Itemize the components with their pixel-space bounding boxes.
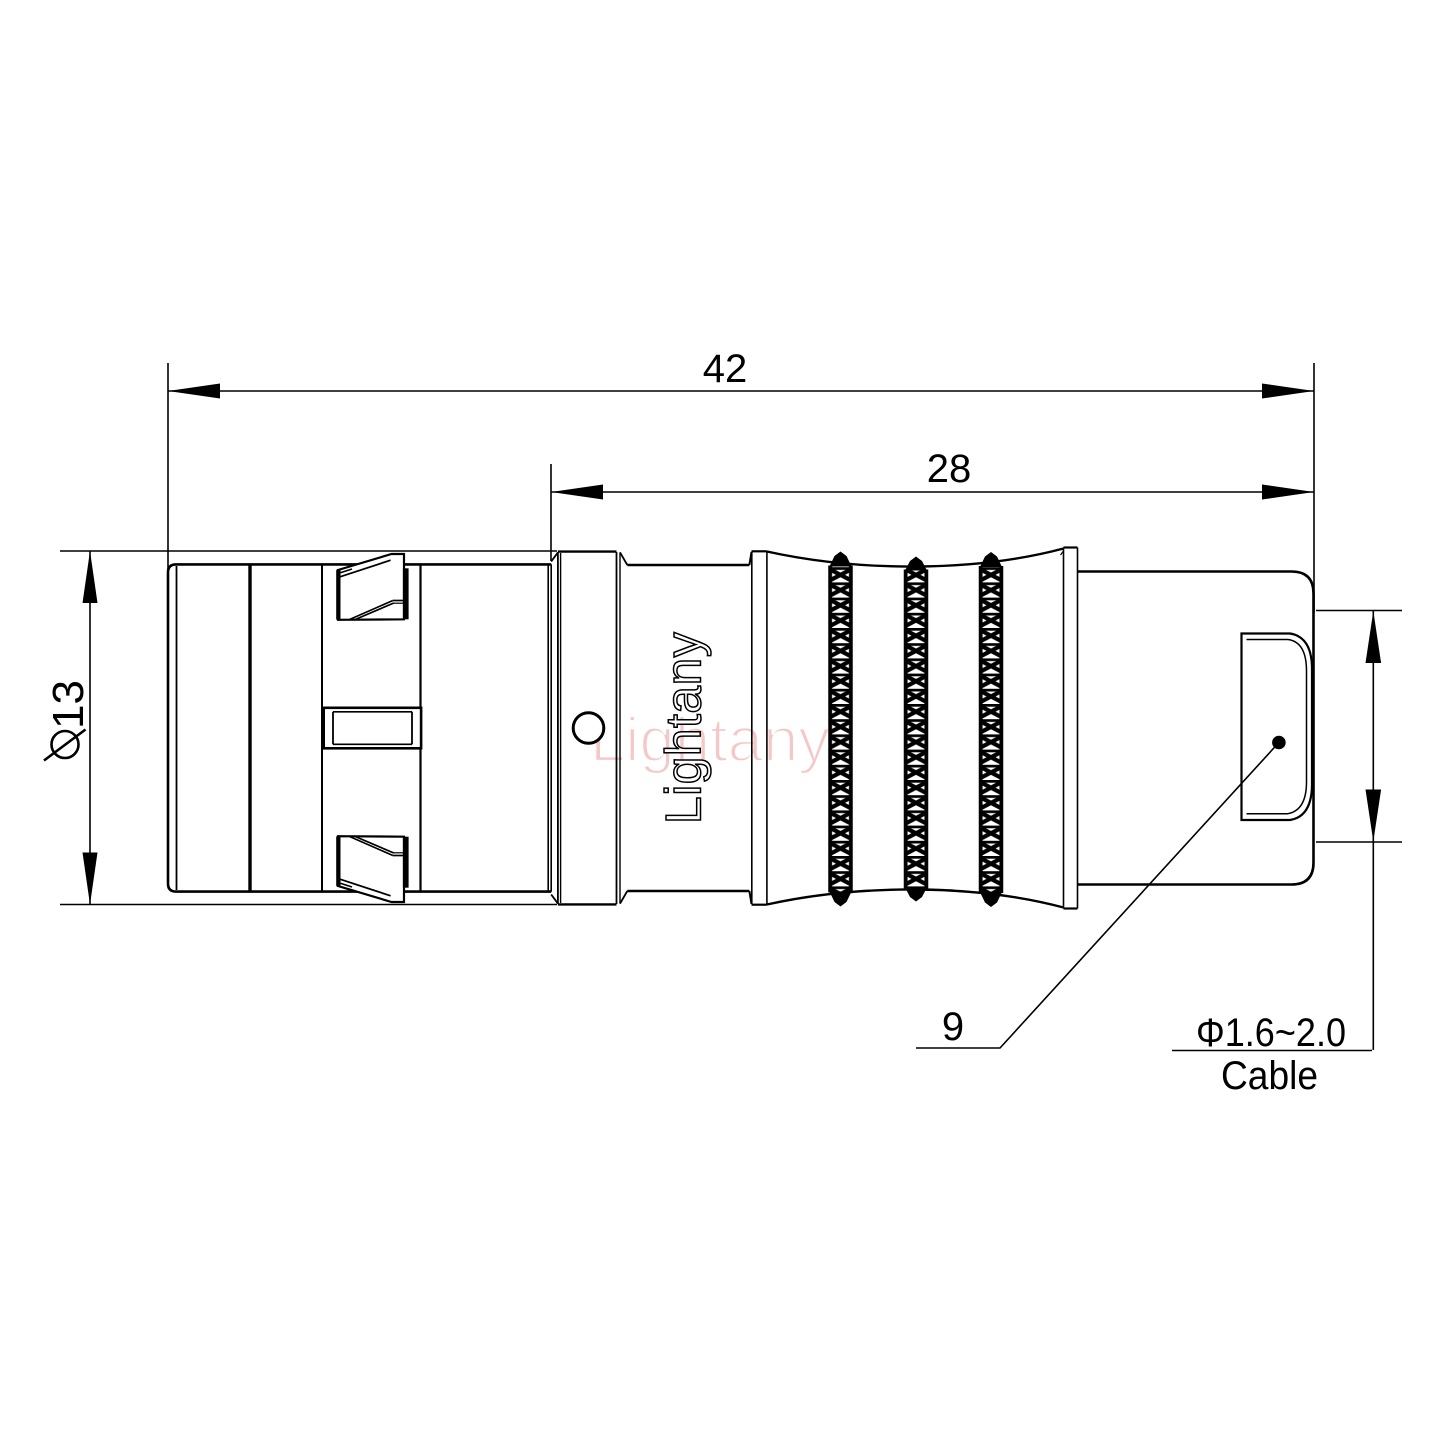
svg-text:42: 42 bbox=[703, 347, 748, 391]
svg-text:Lightany: Lightany bbox=[656, 632, 712, 824]
svg-text:13: 13 bbox=[44, 680, 93, 729]
svg-text:9: 9 bbox=[942, 1005, 964, 1049]
svg-text:Φ1.6~2.0: Φ1.6~2.0 bbox=[1196, 1011, 1346, 1055]
svg-text:Cable: Cable bbox=[1221, 1054, 1318, 1098]
svg-text:28: 28 bbox=[927, 447, 972, 491]
